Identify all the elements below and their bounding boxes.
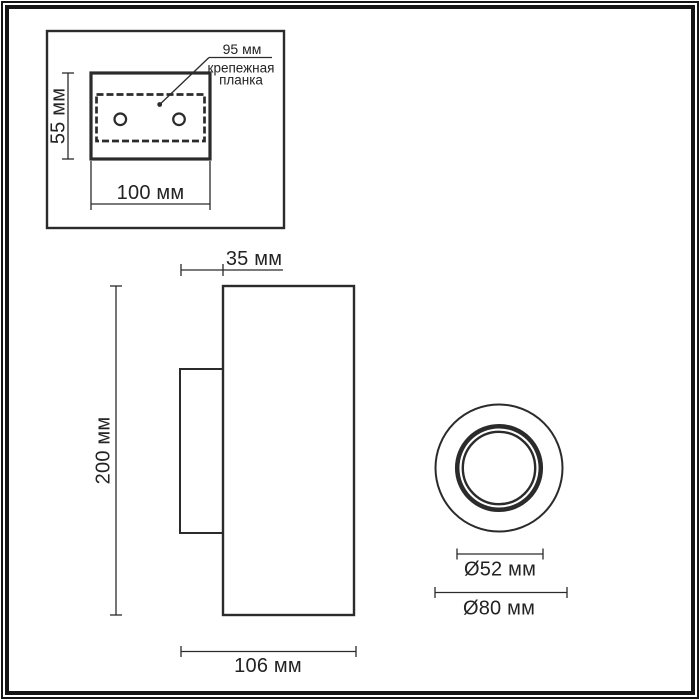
lamp-face-rim-circle <box>457 426 541 510</box>
plate-height-label: 55 мм <box>47 88 69 144</box>
lamp-body-side <box>223 286 354 615</box>
mounting-plate-inset: 95 мм крепежная планка 55 мм 100 мм <box>47 31 284 228</box>
outer-diameter-label: Ø80 мм <box>463 598 535 620</box>
leader-line <box>160 58 209 105</box>
wall-bracket <box>180 369 223 533</box>
dim-80mm <box>435 587 567 598</box>
inner-diameter-label: Ø52 мм <box>464 559 536 581</box>
technical-drawing-page: 95 мм крепежная планка 55 мм 100 мм <box>0 0 700 700</box>
lamp-dimension-drawing: 95 мм крепежная планка 55 мм 100 мм <box>0 0 700 700</box>
lamp-face-outer-circle <box>436 405 563 532</box>
top-depth-label: 35 мм <box>226 248 282 270</box>
lamp-side-view: 35 мм 200 мм 106 мм <box>92 248 356 677</box>
mounting-plate-outline <box>91 73 210 159</box>
total-depth-label: 106 мм <box>234 655 302 677</box>
plate-span-label: 95 мм <box>223 41 262 57</box>
mounting-plate-dashed-outline <box>97 95 205 142</box>
plate-width-label: 100 мм <box>117 182 185 204</box>
plate-name-line2: планка <box>219 73 263 88</box>
screw-hole-right <box>173 114 185 126</box>
lamp-front-view: Ø52 мм Ø80 мм <box>435 405 567 620</box>
screw-hole-left <box>115 114 127 126</box>
lamp-face-inner-circle <box>463 432 535 504</box>
height-label: 200 мм <box>92 417 114 485</box>
